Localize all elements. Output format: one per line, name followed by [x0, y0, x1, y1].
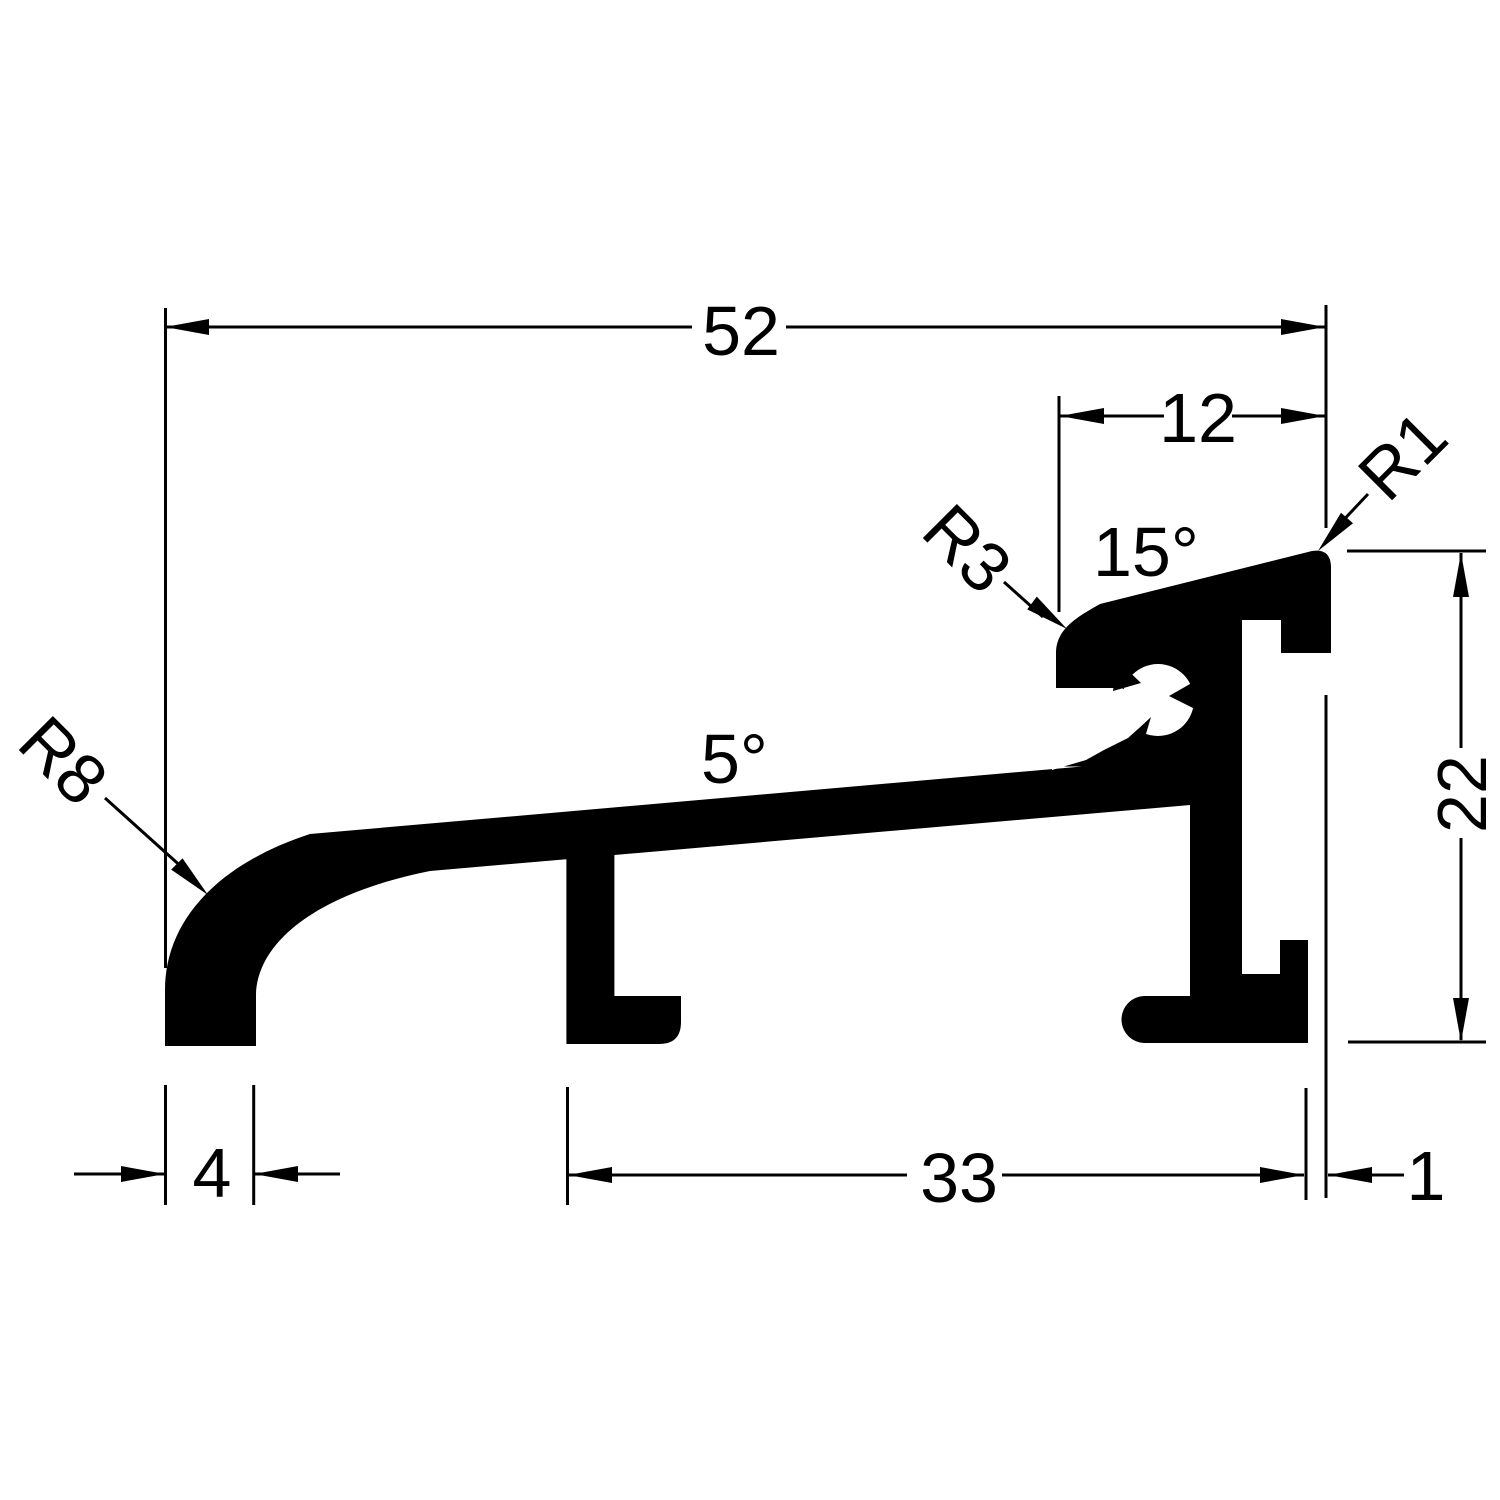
- svg-text:22: 22: [1423, 755, 1500, 833]
- svg-text:4: 4: [193, 1134, 232, 1212]
- svg-text:12: 12: [1159, 379, 1237, 457]
- svg-text:52: 52: [702, 292, 780, 370]
- svg-text:33: 33: [920, 1139, 998, 1217]
- svg-text:5°: 5°: [701, 720, 768, 798]
- svg-text:15°: 15°: [1093, 513, 1199, 591]
- svg-text:1: 1: [1407, 1137, 1446, 1215]
